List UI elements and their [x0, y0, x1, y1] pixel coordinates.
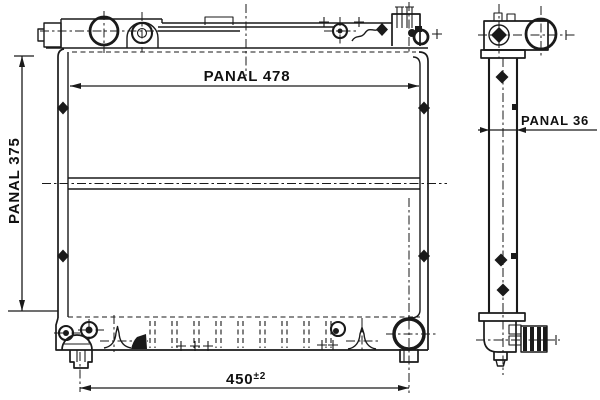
- dim-mount-span: 450±2: [80, 371, 409, 391]
- side-tube-markers: [495, 71, 519, 297]
- dim-panel-height-label: PANAL 375: [6, 137, 23, 224]
- dim-mount-span-arrow-right: [398, 385, 409, 391]
- dimensions: PANAL 478 PANAL 375 PANAL 36 450±2: [6, 56, 597, 391]
- inlet-cross-tick: [432, 29, 442, 39]
- side-outlet-connector-ribs: [523, 327, 547, 351]
- top-tank-end-cap: [38, 23, 61, 47]
- drain-funnel-left: [104, 327, 131, 349]
- front-view: [38, 2, 447, 393]
- dim-panel-width-arrow-right: [408, 83, 419, 89]
- bottom-tank: [54, 198, 436, 393]
- inlet-fitting-block: [415, 26, 422, 32]
- dim-panel-width: PANAL 478: [70, 68, 419, 89]
- dim-panel-height-arrow-bottom: [19, 300, 25, 311]
- drain-plug-left: [70, 350, 92, 368]
- overflow-diamond: [376, 23, 388, 36]
- dim-panel-depth-arrow-left: [480, 127, 489, 133]
- drain-plug-left-inner: [77, 350, 85, 362]
- inlet-pipes: [395, 7, 414, 28]
- side-top-tabs: [494, 13, 515, 21]
- core-edge-markers: [57, 102, 430, 263]
- dim-panel-width-arrow-left: [70, 83, 81, 89]
- side-top-flange: [481, 50, 525, 58]
- dim-mount-span-value: 450: [226, 371, 253, 388]
- top-edge-ticks: [319, 17, 364, 27]
- dim-panel-depth: PANAL 36: [478, 113, 597, 133]
- core: [42, 49, 447, 350]
- drawing-page: PANAL 478 PANAL 375 PANAL 36 450±2: [0, 0, 600, 400]
- dim-panel-height-arrow-top: [19, 56, 25, 67]
- side-bottom-tank-steps: [509, 325, 521, 345]
- sensor-boss-centerlines: [324, 17, 356, 46]
- side-drain-plug: [494, 352, 507, 360]
- drain-funnel-right-centerlines: [346, 318, 380, 352]
- dim-mount-span-arrow-left: [80, 385, 91, 391]
- top-tank: [38, 2, 442, 76]
- bottom-tank-outline: [56, 318, 428, 350]
- tank-top-tab: [205, 17, 233, 25]
- bottom-tank-ribs: [150, 321, 331, 348]
- dim-panel-width-label: PANAL 478: [204, 68, 291, 85]
- side-view: [476, 4, 577, 375]
- side-bottom-flange: [479, 313, 525, 321]
- dim-mount-span-label: 450±2: [226, 371, 266, 388]
- inlet-fitting-ring: [414, 30, 428, 44]
- dim-panel-depth-label: PANAL 36: [521, 113, 589, 128]
- mount-pin-right-center: [333, 328, 339, 334]
- core-right-edge-inner: [412, 57, 420, 318]
- side-drain-plug-taper: [496, 360, 505, 366]
- radiator-diagram-canvas: PANAL 478 PANAL 375 PANAL 36 450±2: [0, 0, 600, 400]
- dim-mount-span-tolerance: ±2: [253, 371, 266, 382]
